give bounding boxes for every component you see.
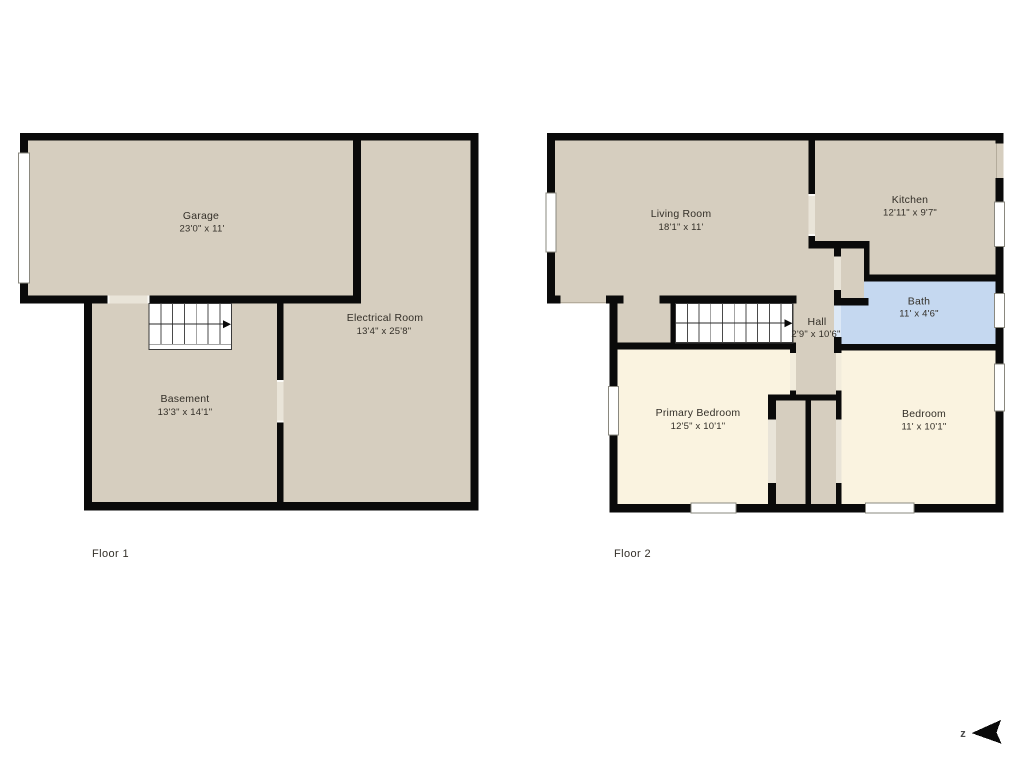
svg-text:18'1" x 11': 18'1" x 11' — [659, 222, 704, 233]
svg-text:11' x 4'6": 11' x 4'6" — [899, 309, 938, 320]
svg-text:Living Room: Living Room — [651, 208, 712, 220]
svg-text:Electrical Room: Electrical Room — [347, 312, 424, 324]
svg-text:Garage: Garage — [183, 210, 219, 222]
svg-text:Basement: Basement — [161, 393, 210, 405]
svg-text:13'3" x 14'1": 13'3" x 14'1" — [158, 407, 213, 418]
svg-text:Bedroom: Bedroom — [902, 408, 946, 420]
svg-text:Primary Bedroom: Primary Bedroom — [656, 407, 741, 419]
svg-text:12'5" x 10'1": 12'5" x 10'1" — [671, 421, 726, 432]
svg-text:2'9" x 10'6": 2'9" x 10'6" — [791, 329, 840, 340]
svg-text:Bath: Bath — [908, 296, 930, 308]
svg-text:z: z — [960, 728, 966, 740]
svg-text:11' x 10'1": 11' x 10'1" — [902, 422, 947, 433]
svg-text:23'0" x 11': 23'0" x 11' — [180, 224, 225, 235]
svg-text:13'4" x 25'8": 13'4" x 25'8" — [357, 326, 412, 337]
svg-text:Floor 1: Floor 1 — [92, 548, 129, 560]
svg-text:Hall: Hall — [808, 316, 827, 328]
svg-text:Floor 2: Floor 2 — [614, 548, 651, 560]
svg-text:12'11" x 9'7": 12'11" x 9'7" — [883, 208, 937, 219]
svg-text:Kitchen: Kitchen — [892, 194, 928, 206]
